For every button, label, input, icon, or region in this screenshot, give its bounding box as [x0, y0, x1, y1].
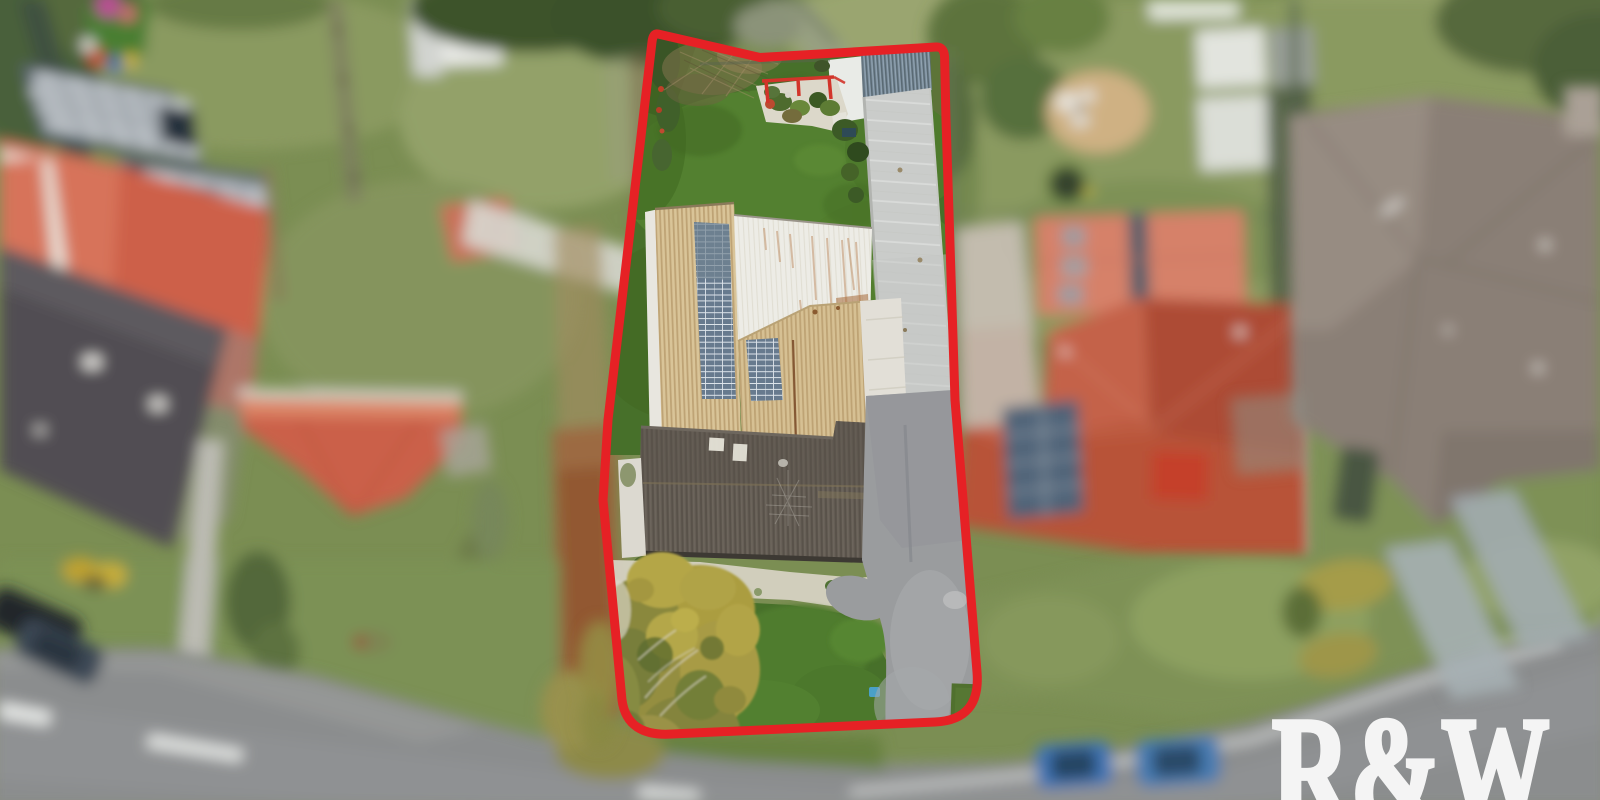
svg-text:R&W: R&W	[1272, 688, 1550, 800]
